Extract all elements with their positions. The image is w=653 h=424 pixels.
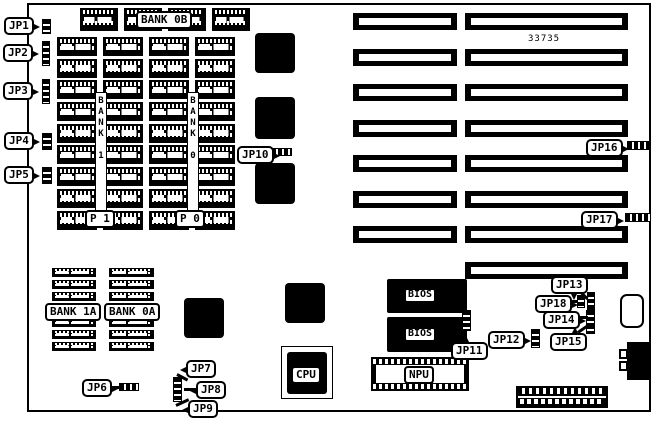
memory-chip	[149, 37, 189, 56]
bios-label-text: BIOS	[408, 328, 432, 339]
expansion-slot	[353, 191, 457, 208]
memory-chip	[103, 167, 143, 186]
jp8-label: JP8	[196, 381, 226, 399]
motherboard-diagram: BANK 0B BANK 1 BANK 0 P 1 P 0 33735 BANK…	[0, 0, 653, 424]
memory-chip	[149, 145, 189, 164]
jp17-pointer	[616, 217, 624, 225]
jp17-jumper	[625, 213, 651, 222]
memory-chip	[52, 280, 96, 289]
jp3-jumper	[42, 79, 50, 104]
memory-chip	[103, 37, 143, 56]
power-connector	[516, 386, 608, 408]
jp7-pointer	[180, 366, 188, 374]
jp15-jumper	[586, 324, 595, 334]
memory-chip	[149, 80, 189, 99]
memory-chip	[109, 330, 154, 339]
jp16-jumper	[627, 141, 651, 150]
jp1-label: JP1	[4, 17, 34, 35]
jp11-pointer	[462, 336, 470, 344]
jp18-label: JP18	[535, 295, 572, 313]
jp10-label: JP10	[237, 146, 274, 164]
jp2-label: JP2	[3, 44, 33, 62]
logic-chip	[255, 33, 295, 73]
p0-label-text: P 0	[180, 212, 200, 225]
power-connector-pins	[518, 388, 606, 396]
expansion-slot	[465, 155, 628, 172]
bank-0b-label-text: BANK 0B	[141, 13, 187, 26]
keyboard-connector-tab	[619, 349, 628, 359]
cpu-label: CPU	[291, 366, 321, 384]
memory-chip	[52, 268, 96, 277]
expansion-slot	[353, 13, 457, 30]
memory-chip	[103, 124, 143, 143]
memory-chip	[212, 8, 250, 31]
jp3-pointer	[31, 88, 39, 96]
bank-0a-chips-bottom	[109, 318, 154, 351]
jp12-jumper	[531, 329, 540, 348]
main-memory-array	[57, 37, 235, 230]
memory-chip	[149, 59, 189, 78]
expansion-slot	[353, 226, 457, 243]
memory-chip	[195, 37, 235, 56]
jp9-label: JP9	[188, 400, 218, 418]
bank-1a-chips-bottom	[52, 318, 96, 351]
jp16-pointer	[621, 145, 629, 153]
jp7-jp8-jp9-jumper	[173, 377, 182, 402]
jp5-label: JP5	[4, 166, 34, 184]
memory-chip	[195, 80, 235, 99]
memory-chip	[52, 330, 96, 339]
memory-chip	[57, 80, 97, 99]
jp2-jumper	[42, 41, 50, 66]
jp15-label: JP15	[550, 333, 587, 351]
memory-chip	[195, 189, 235, 208]
bank-0-strip: BANK 0	[187, 92, 199, 212]
jp4-jumper	[42, 133, 52, 150]
memory-chip	[195, 124, 235, 143]
bank-1a-chips-top	[52, 268, 96, 301]
bios-label-text: BIOS	[408, 289, 432, 300]
expansion-slot	[353, 120, 457, 137]
bios-label: BIOS	[405, 328, 435, 341]
memory-chip	[149, 189, 189, 208]
memory-chip	[109, 292, 154, 301]
memory-chip	[57, 167, 97, 186]
memory-chip	[52, 292, 96, 301]
memory-chip	[103, 145, 143, 164]
expansion-slot	[465, 49, 628, 66]
bank-1a-label: BANK 1A	[45, 303, 101, 321]
expansion-slot	[353, 155, 457, 172]
bank-0a-label: BANK 0A	[104, 303, 160, 321]
expansion-slots-short	[353, 13, 457, 243]
logic-chip	[255, 97, 295, 139]
memory-chip	[57, 124, 97, 143]
expansion-slot	[465, 191, 628, 208]
jp5-pointer	[32, 172, 40, 180]
memory-chip	[57, 102, 97, 121]
memory-chip	[57, 145, 97, 164]
jp15-pointer	[571, 327, 579, 335]
battery-outline	[620, 294, 644, 328]
memory-chip	[80, 8, 118, 31]
memory-chip	[103, 102, 143, 121]
jp6-jumper	[119, 383, 139, 391]
jp5-jumper	[42, 167, 52, 184]
memory-chip	[109, 342, 154, 351]
jp7-label: JP7	[186, 360, 216, 378]
jp14-pointer	[578, 317, 586, 325]
power-connector-holes	[518, 398, 606, 406]
jp1-pointer	[32, 23, 40, 31]
jp13-jumper	[587, 292, 595, 310]
bank-1-strip: BANK 1	[95, 92, 107, 212]
expansion-slot	[353, 49, 457, 66]
memory-chip	[195, 102, 235, 121]
memory-chip	[52, 342, 96, 351]
memory-chip	[57, 189, 97, 208]
p1-label-text: P 1	[90, 212, 110, 225]
memory-chip	[103, 189, 143, 208]
bank-0a-label-text: BANK 0A	[109, 305, 155, 318]
memory-chip	[103, 59, 143, 78]
memory-chip	[195, 167, 235, 186]
memory-chip	[57, 37, 97, 56]
logic-chip	[285, 283, 325, 323]
memory-chip	[195, 59, 235, 78]
memory-chip	[109, 280, 154, 289]
logic-chip	[255, 163, 295, 204]
jp8-pointer	[190, 387, 198, 395]
jp18-pointer	[570, 301, 578, 309]
jp16-label: JP16	[586, 139, 623, 157]
bank-1a-label-text: BANK 1A	[50, 305, 96, 318]
bank-0b-label: BANK 0B	[136, 11, 192, 29]
jp11-jumper	[462, 310, 471, 331]
npu-pin-row	[373, 384, 467, 389]
expansion-slot	[353, 84, 457, 101]
memory-chip	[103, 80, 143, 99]
jp13-label: JP13	[551, 276, 588, 294]
jp17-label: JP17	[581, 211, 618, 229]
expansion-slot	[465, 13, 628, 30]
p1-label: P 1	[85, 210, 115, 228]
memory-chip	[57, 59, 97, 78]
npu-label: NPU	[404, 366, 434, 384]
jp6-pointer	[110, 385, 118, 393]
jp12-pointer	[523, 337, 531, 345]
jp12-label: JP12	[488, 331, 525, 349]
jp11-label: JP11	[451, 342, 488, 360]
logic-chip	[184, 298, 224, 338]
jp2-pointer	[31, 50, 39, 58]
jp3-label: JP3	[3, 82, 33, 100]
npu-label-text: NPU	[409, 368, 429, 381]
cpu-label-text: CPU	[296, 368, 316, 381]
jp4-pointer	[32, 138, 40, 146]
expansion-slot	[465, 84, 628, 101]
expansion-slot	[465, 120, 628, 137]
bank-0a-chips-top	[109, 268, 154, 301]
jp10-pointer	[272, 152, 280, 160]
expansion-slot	[465, 262, 628, 279]
memory-chip	[149, 167, 189, 186]
memory-chip	[149, 124, 189, 143]
memory-chip	[195, 145, 235, 164]
jp9-pointer	[182, 406, 190, 414]
part-number: 33735	[528, 34, 560, 44]
memory-chip	[149, 102, 189, 121]
jp4-label: JP4	[4, 132, 34, 150]
memory-chip	[109, 268, 154, 277]
keyboard-connector	[627, 342, 651, 380]
bios-label: BIOS	[405, 289, 435, 302]
jp6-label: JP6	[82, 379, 112, 397]
p0-label: P 0	[175, 210, 205, 228]
jp1-jumper	[42, 19, 51, 34]
keyboard-connector-tab	[619, 361, 628, 371]
